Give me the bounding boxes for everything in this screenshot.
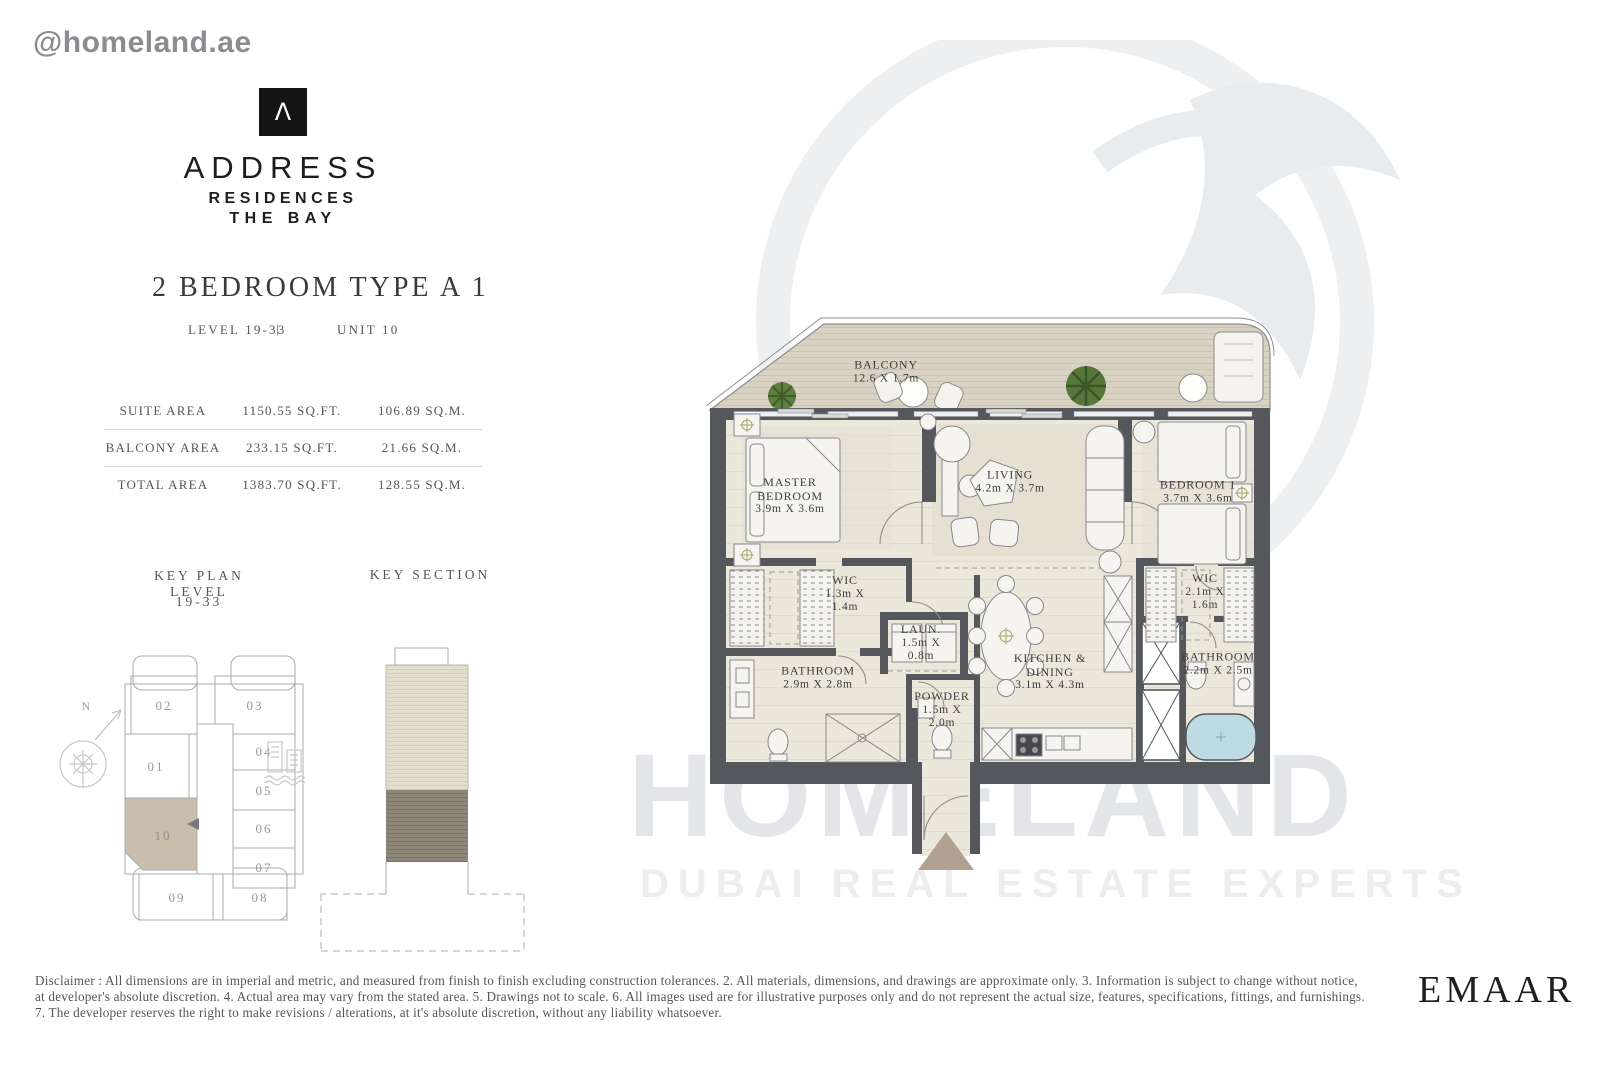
side-table-icon [920,414,936,430]
area-table: SUITE AREA 1150.55 SQ.FT. 106.89 SQ.M. B… [104,393,482,503]
table-row: BALCONY AREA 233.15 SQ.FT. 21.66 SQ.M. [104,429,482,466]
homeland-handle: @homeland.ae [33,26,252,60]
fridge-pantry-icon [1104,576,1132,672]
area-sqft: 233.15 SQ.FT. [222,440,362,456]
wardrobe-icon [730,570,764,646]
area-label: SUITE AREA [104,403,222,419]
palm-island-icon [57,738,109,792]
balcony-plant-icon [768,382,796,410]
kitchen-counter-icon [982,728,1132,760]
keyplan-unit-label: 02 [156,698,173,713]
address-logo-glyph: Λ [275,98,291,126]
sofa-icon [1086,426,1124,550]
twin-bed-icon [1158,422,1246,482]
floor-plan: BALCONY 12.6 X 1.7m MASTER BEDROOM 3.9m … [690,310,1290,910]
brand-name: ADDRESS [170,150,396,186]
room-label-laundry: LAUN. 1.5m X 0.8m [892,623,950,664]
disclaimer-line: at developer's absolute discretion. 4. A… [35,989,1390,1005]
city-skyline-icon [263,736,309,788]
bathtub-icon [1186,714,1256,760]
area-sqm: 21.66 SQ.M. [362,440,482,456]
unit-type-title: 2 BEDROOM TYPE A 1 [152,272,489,304]
key-plan-levels: 19-33 [124,594,274,610]
vanity-sink-icon [730,660,754,718]
table-row: TOTAL AREA 1383.70 SQ.FT. 128.55 SQ.M. [104,466,482,503]
unit-number-label: UNIT 10 [337,322,399,338]
room-label-living: LIVING 4.2m X 3.7m [950,469,1070,496]
section-podium-outline [321,894,524,951]
section-highlighted-floors [386,790,468,862]
keyplan-unit-label: 06 [256,821,273,836]
keyplan-core [197,724,233,874]
room-label-wic-right: WIC 2.1m X 1.6m [1176,572,1234,613]
chair-icon [1133,421,1155,443]
room-label-master-bedroom: MASTER BEDROOM 3.9m X 3.6m [744,476,836,517]
key-section-title: KEY SECTION [365,567,495,583]
shaft-icon [1142,622,1180,760]
keyplan-unit-label: 09 [169,890,186,905]
area-sqft: 1150.55 SQ.FT. [222,403,362,419]
room-label-balcony: BALCONY 12.6 X 1.7m [811,359,961,386]
keyplan-unit-label-highlighted: 10 [155,828,172,843]
disclaimer: Disclaimer : All dimensions are in imper… [35,973,1390,1021]
keyplan-unit-label: 03 [247,698,264,713]
area-label: BALCONY AREA [104,440,222,456]
room-label-bathroom-left: BATHROOM 2.9m X 2.8m [763,665,873,692]
pouf-icon [950,516,980,547]
key-section-diagram [315,618,530,958]
room-label-bedroom-1: BEDROOM 1 3.7m X 3.6m [1143,479,1253,506]
brand-sub-residences: RESIDENCES [170,190,396,208]
emaar-logo: EMAAR [1418,968,1575,1012]
flyer-page: HOMELAND DUBAI REAL ESTATE EXPERTS @home… [0,0,1618,1080]
keyplan-unit-label: 08 [252,890,269,905]
area-sqft: 1383.70 SQ.FT. [222,477,362,493]
disclaimer-line: Disclaimer : All dimensions are in imper… [35,973,1390,989]
level-label: LEVEL 19-33 [188,322,286,338]
disclaimer-line: 7. The developer reserves the right to m… [35,1005,1390,1021]
level-unit-separator: | [276,321,281,337]
keyplan-lobe [231,656,295,690]
room-label-wic-left: WIC 1.3m X 1.4m [816,574,874,615]
section-roof [395,648,448,665]
area-sqm: 106.89 SQ.M. [362,403,482,419]
keyplan-unit-label: 07 [256,860,273,875]
armchair-icon [934,426,970,462]
north-label: N [82,699,93,713]
twin-bed-icon [1158,504,1246,564]
side-table-icon [1099,551,1121,573]
room-label-bathroom-right: BATHROOM 2.2m X 2.5m [1168,651,1268,678]
area-sqm: 128.55 SQ.M. [362,477,482,493]
address-logo-icon: Λ [259,88,307,136]
north-arrow-icon [95,710,121,740]
room-label-powder: POWDER 1.5m X 2.0m [911,690,973,731]
area-label: TOTAL AREA [104,477,222,493]
toilet-icon [768,729,788,761]
keyplan-unit-label: 01 [148,759,165,774]
room-label-kitchen-dining: KITCHEN & DINING 3.1m X 4.3m [1004,652,1096,693]
section-upper-floors [386,665,468,790]
balcony-palm-icon [1066,366,1106,406]
brand-block: Λ ADDRESS RESIDENCES THE BAY [170,88,396,228]
keyplan-lobe [133,656,197,690]
table-row: SUITE AREA 1150.55 SQ.FT. 106.89 SQ.M. [104,393,482,429]
pouf-icon [989,519,1020,548]
wardrobe-icon [1146,568,1176,642]
brand-sub-thebay: THE BAY [170,210,396,228]
